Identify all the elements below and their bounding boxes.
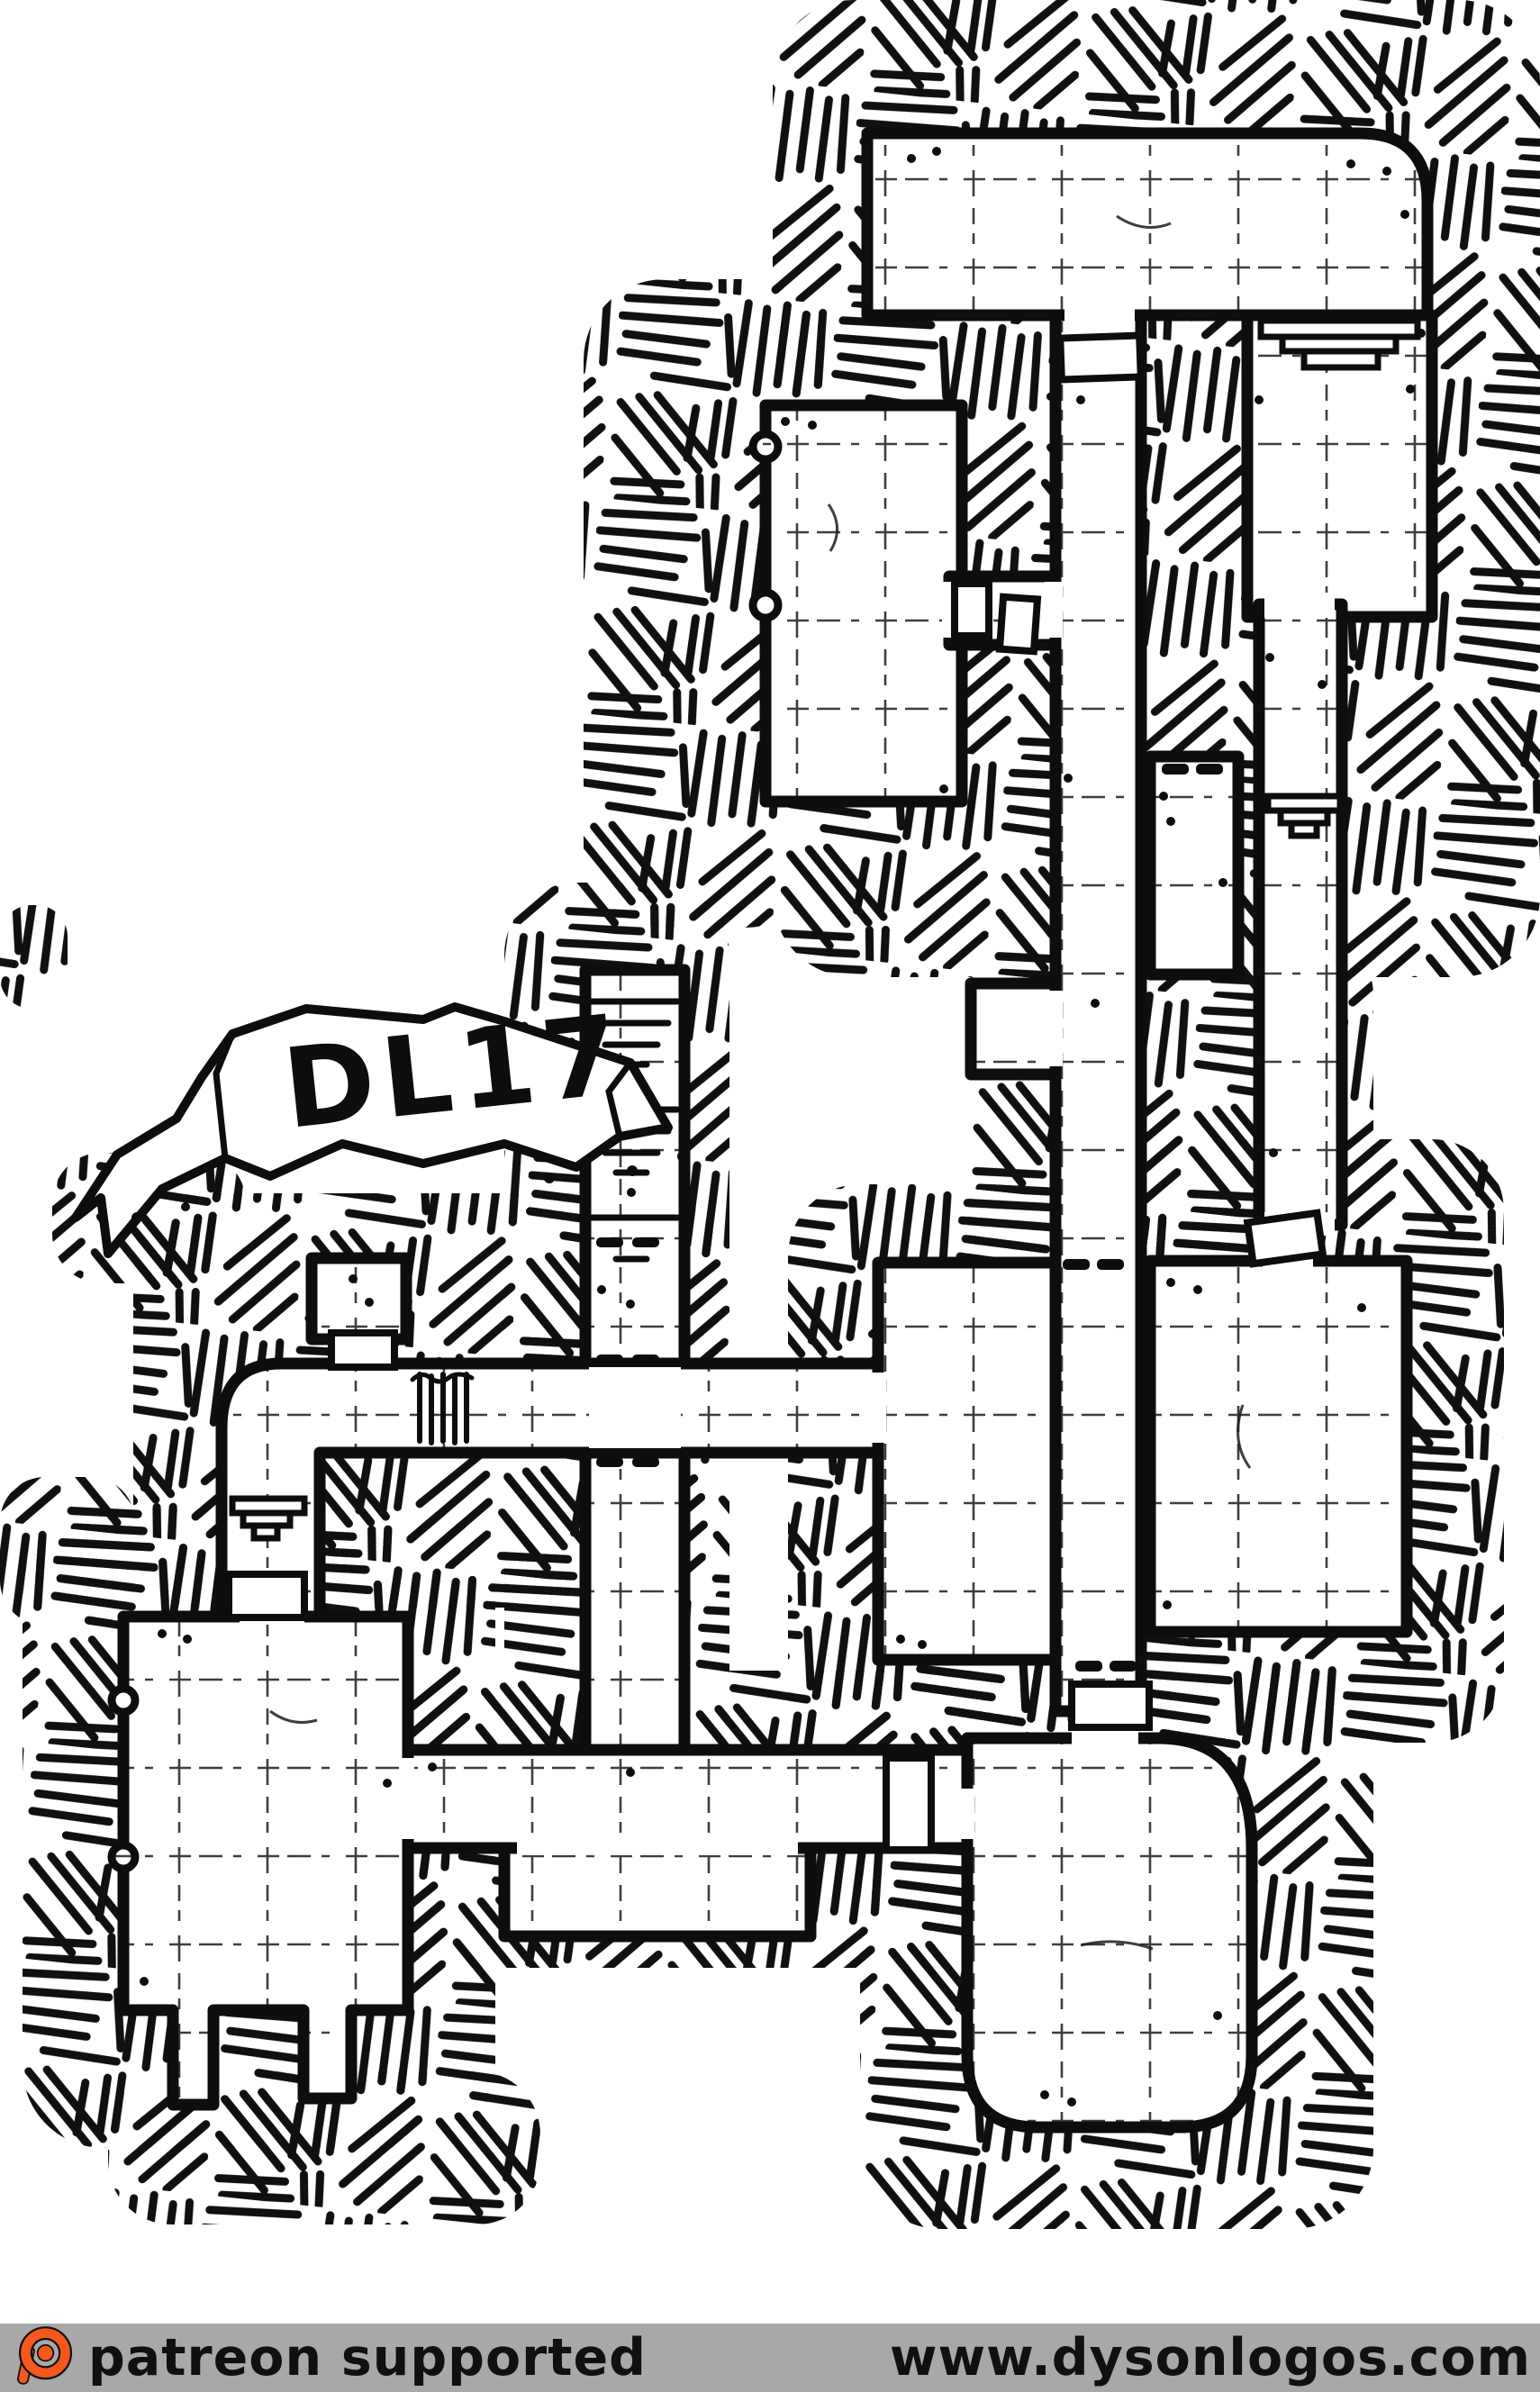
- room-southeast-rounded: [967, 1738, 1252, 2127]
- door: [1000, 597, 1037, 652]
- door: [1247, 1213, 1323, 1264]
- wall-niche: [112, 1845, 135, 1869]
- dungeon-map-illustration: DL17: [0, 0, 1540, 2324]
- room-great-hall: [867, 133, 1427, 315]
- room-small-north: [312, 1258, 406, 1339]
- dashed-opening: [1075, 1661, 1102, 1672]
- wall-niche: [753, 593, 778, 618]
- footer-left: patreon supported: [9, 2324, 647, 2392]
- dashed-opening: [596, 1355, 623, 1364]
- door: [886, 1758, 931, 1850]
- secret-chamber: [1150, 757, 1238, 974]
- door: [331, 1333, 394, 1367]
- page: DL17 patreon supported www.dysonlogos.co…: [0, 0, 1540, 2392]
- dashed-opening: [596, 1237, 623, 1247]
- door: [1072, 1684, 1149, 1727]
- room-mid-east: [1150, 1261, 1407, 1632]
- dashed-opening: [1063, 1259, 1090, 1270]
- dashed-opening: [1196, 764, 1223, 775]
- door: [229, 1574, 304, 1617]
- room-mid-west: [878, 1263, 1055, 1660]
- patreon-icon-glyph: [9, 2324, 76, 2391]
- corridor-alcove: [971, 983, 1055, 1074]
- dashed-opening: [632, 1355, 659, 1364]
- dashed-opening: [632, 1237, 659, 1247]
- door: [955, 584, 989, 636]
- dashed-opening: [1097, 1259, 1124, 1270]
- room-west-upper: [765, 405, 962, 802]
- wall-niche: [112, 1689, 135, 1712]
- corridor-east: [1259, 604, 1342, 1225]
- dashed-opening: [1110, 1661, 1137, 1672]
- footer-url-text: www.dysonlogos.com: [890, 2324, 1531, 2392]
- footer-patreon-text: patreon supported: [88, 2324, 647, 2392]
- patreon-icon: [9, 2324, 76, 2391]
- corridor-main: [1055, 315, 1141, 1711]
- dashed-opening: [1162, 764, 1189, 775]
- dashed-opening: [632, 1457, 659, 1467]
- door: [1060, 335, 1141, 379]
- dashed-opening: [596, 1457, 623, 1467]
- room-south-annex: [504, 1848, 811, 1936]
- footer-bar: patreon supported www.dysonlogos.com: [0, 2324, 1540, 2392]
- wall-niche: [753, 434, 778, 459]
